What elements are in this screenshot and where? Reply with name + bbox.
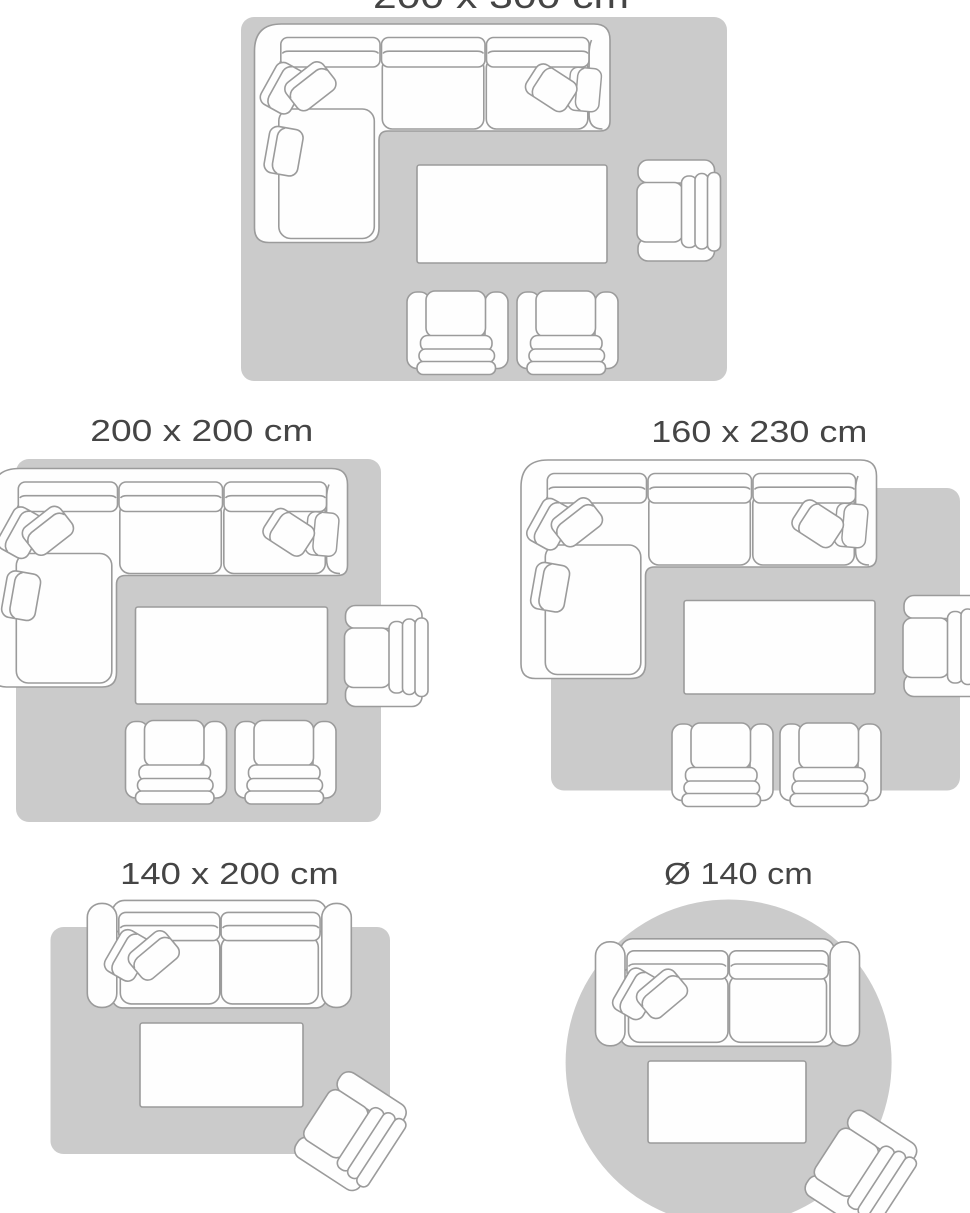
svg-text:200 x 200 cm: 200 x 200 cm [90, 414, 313, 448]
svg-text:Ø 140 cm: Ø 140 cm [664, 857, 813, 891]
svg-text:200 x 300 cm: 200 x 300 cm [373, 0, 629, 16]
svg-text:140 x 200 cm: 140 x 200 cm [120, 857, 339, 891]
svg-text:160 x 230 cm: 160 x 230 cm [651, 415, 867, 449]
